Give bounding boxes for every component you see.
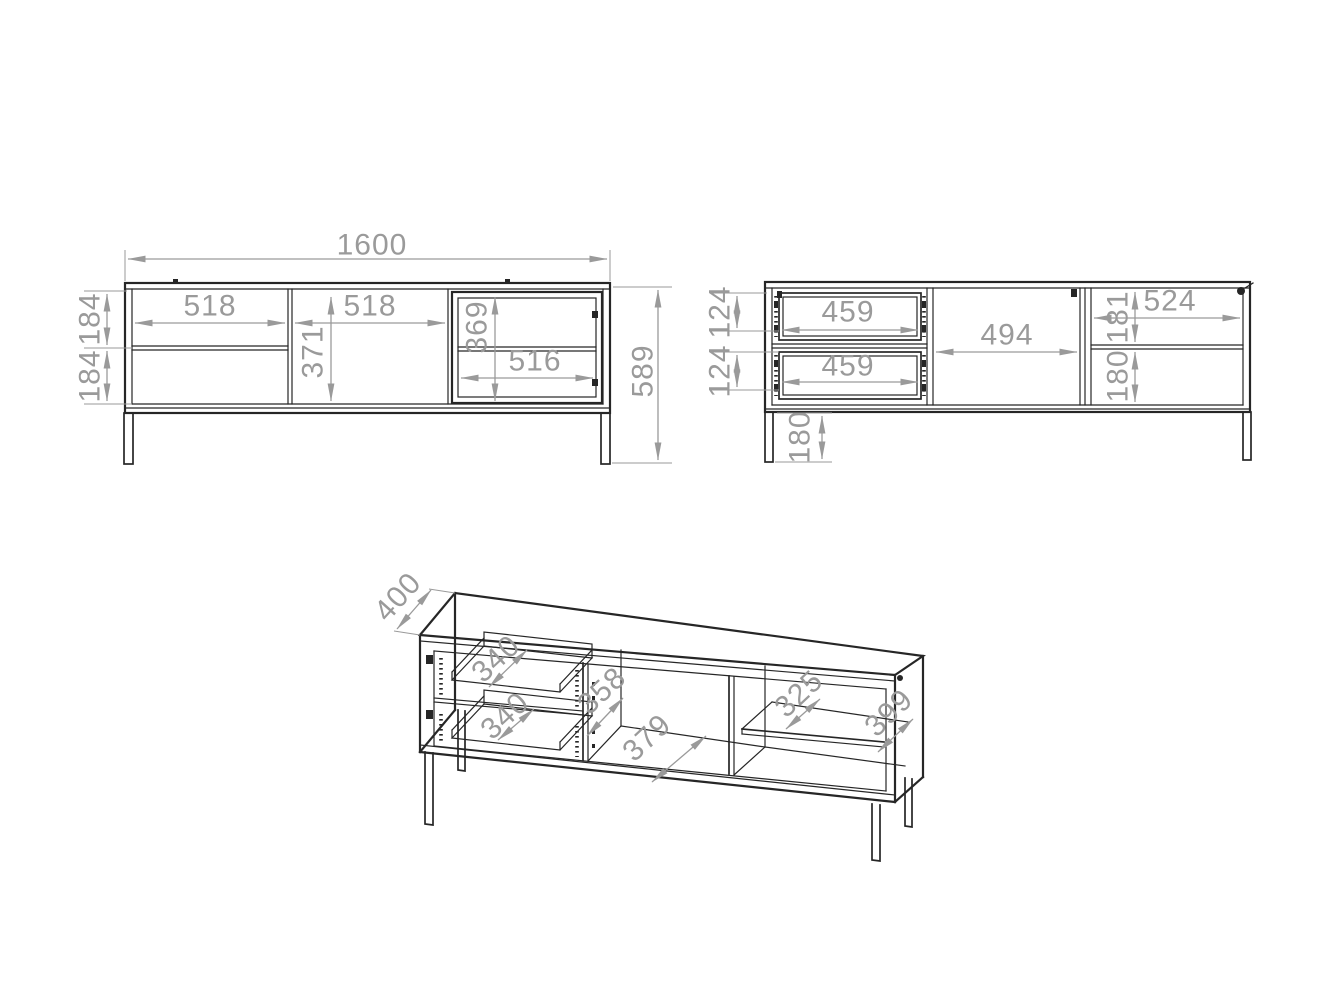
dim-perspective-overall-depth: 400 bbox=[368, 566, 428, 628]
dim-front-door-width: 518 bbox=[343, 290, 396, 323]
front-legs bbox=[124, 413, 610, 464]
dim-perspective-side-depth: 399 bbox=[858, 683, 919, 744]
dim-front-overall-width: 1600 bbox=[337, 229, 408, 262]
dim-back-upper-drawer-box-height: 124 bbox=[704, 285, 737, 338]
dim-front-glass-width: 516 bbox=[508, 345, 561, 378]
dim-perspective-upper-drawer-depth: 340 bbox=[465, 629, 526, 689]
perspective-cabinet-outline bbox=[420, 593, 923, 802]
dim-back-right-upper-height: 181 bbox=[1102, 290, 1135, 343]
dim-front-door-height: 371 bbox=[297, 325, 330, 378]
perspective-view: 400 340 340 358 379 325 399 bbox=[368, 566, 923, 861]
dim-front-left-drawer-width: 518 bbox=[183, 290, 236, 323]
furniture-technical-drawing: 1600 589 184 184 518 518 371 369 516 bbox=[0, 0, 1341, 1005]
dim-back-middle-width: 494 bbox=[980, 319, 1033, 352]
technical-drawing-page: 1600 589 184 184 518 518 371 369 516 bbox=[0, 0, 1341, 1005]
dim-perspective-middle-floor-depth: 379 bbox=[616, 708, 677, 768]
dim-front-overall-height: 589 bbox=[627, 344, 660, 397]
dim-back-lower-drawer-box-height: 124 bbox=[704, 344, 737, 397]
back-dimensions: 124 124 459 459 494 524 181 180 180 bbox=[704, 285, 1241, 464]
dim-front-glass-height: 369 bbox=[461, 300, 494, 353]
dim-front-upper-drawer-height: 184 bbox=[74, 292, 107, 345]
back-legs bbox=[765, 412, 1251, 462]
back-view: 124 124 459 459 494 524 181 180 180 bbox=[704, 282, 1254, 464]
dim-front-lower-drawer-height: 184 bbox=[74, 349, 107, 402]
dim-perspective-shelf-depth: 325 bbox=[768, 664, 829, 724]
dim-back-upper-drawer-box-width: 459 bbox=[821, 296, 874, 329]
dim-back-right-lower-height: 180 bbox=[1102, 349, 1135, 402]
front-view: 1600 589 184 184 518 518 371 369 516 bbox=[74, 229, 673, 465]
dim-back-lower-drawer-box-width: 459 bbox=[821, 350, 874, 383]
dim-back-leg-height: 180 bbox=[784, 410, 817, 463]
dim-back-right-width: 524 bbox=[1143, 285, 1196, 318]
